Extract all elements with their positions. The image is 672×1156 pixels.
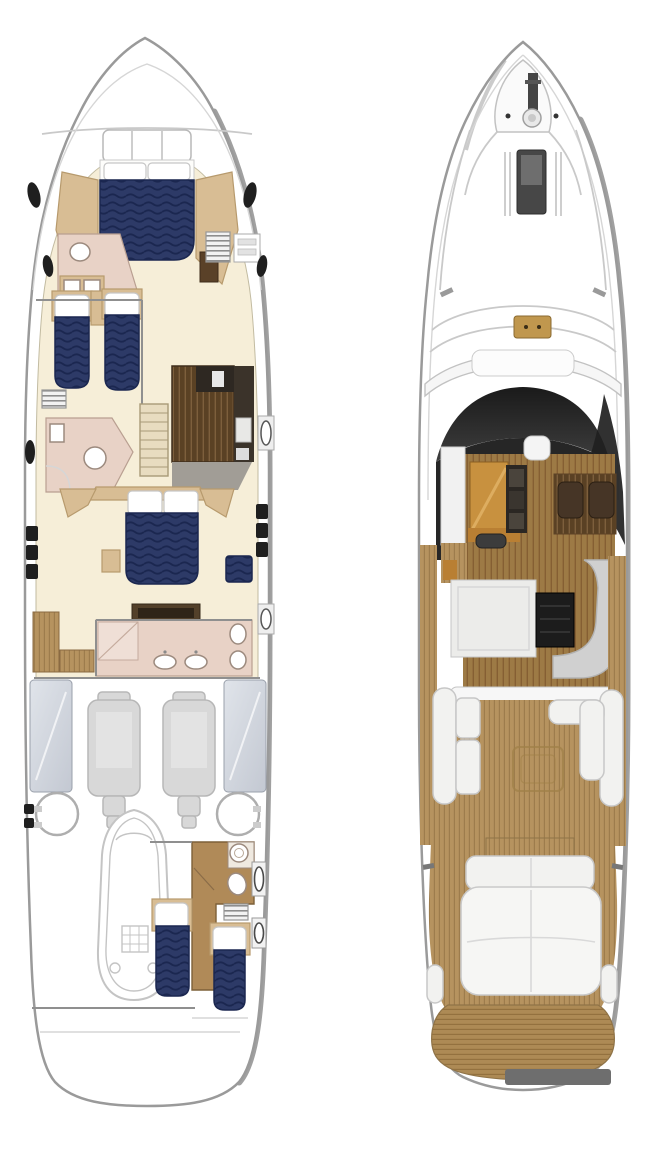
foredeck-table: [514, 316, 551, 338]
side-locker: [234, 234, 260, 262]
lower-galley: [172, 366, 254, 490]
basin-1: [154, 655, 176, 669]
cockpit-settee-side: [580, 700, 604, 780]
bidet: [230, 651, 246, 669]
cabin-step: [42, 390, 66, 408]
toilet: [230, 624, 246, 644]
anchor: [528, 73, 538, 110]
aft-seat-back: [466, 856, 594, 890]
crew-berth-2: [214, 950, 245, 1010]
swim-platform: [432, 1005, 615, 1080]
galley-cabinet-aft: [443, 560, 457, 580]
galley-appliance: [236, 448, 249, 460]
bow-skylight: [103, 130, 191, 162]
galley-sink: [236, 418, 251, 442]
salon: [441, 436, 620, 702]
galley-step-landing: [172, 462, 252, 490]
master-seat: [226, 556, 252, 582]
stern-gate-starboard: [601, 965, 617, 1003]
toilet: [70, 243, 90, 261]
twin-berth-1: [55, 317, 89, 388]
sunroof-frame: [524, 436, 550, 460]
companionway-stairs: [140, 404, 168, 476]
tender-seat: [122, 926, 148, 952]
crew-ladder: [224, 904, 248, 920]
deck-plans-canvas: [0, 0, 672, 1156]
galley-table: [476, 534, 506, 548]
crew-berth-1: [156, 926, 189, 996]
gunwale-port: [433, 688, 456, 804]
aft-teak-top: [486, 838, 574, 858]
companion-ladder: [206, 232, 230, 262]
master-wardrobe: [33, 612, 59, 672]
basin-2: [185, 655, 207, 669]
master-berth: [126, 513, 198, 584]
hardtop-hatch: [472, 350, 574, 376]
galley-counter-side: [234, 366, 254, 462]
transom-step: [505, 1069, 611, 1085]
media-cabinet: [536, 593, 574, 647]
cockpit-bench-2: [456, 740, 480, 794]
yacht-deck-plans: [0, 0, 672, 1156]
master-bench: [60, 650, 94, 672]
twin-berth-2: [105, 315, 139, 390]
crew-basin: [230, 844, 248, 862]
round-basin: [84, 447, 106, 469]
deck-hatch-starboard: [217, 793, 259, 835]
salon-lounge: [451, 580, 536, 657]
master-nightstand: [102, 550, 120, 572]
lower-deck-plan: [24, 38, 274, 1106]
master-head: [96, 620, 252, 676]
side-deck-port: [441, 447, 465, 545]
deck-hatch-port: [36, 793, 78, 835]
main-deck-plan: [419, 42, 627, 1090]
helm-seat-2: [589, 482, 614, 518]
cockpit-bench-1: [456, 698, 480, 738]
helm-seat-1: [558, 482, 583, 518]
stern-gate-port: [427, 965, 443, 1003]
